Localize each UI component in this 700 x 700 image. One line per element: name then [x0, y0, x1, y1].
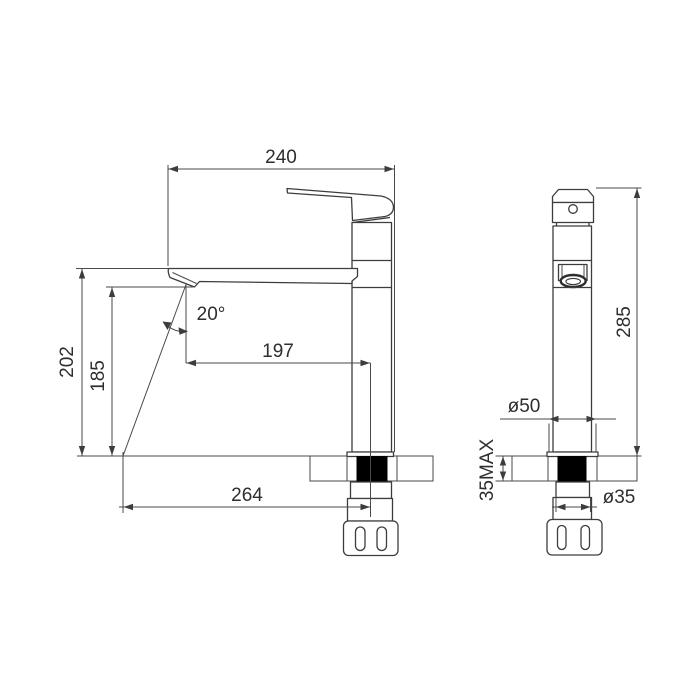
dim-185-group: 185 — [88, 287, 193, 456]
threaded-shank-front — [556, 482, 590, 498]
counter-hatch-left — [310, 456, 347, 481]
spout-arm — [168, 269, 357, 288]
handle-block-front — [553, 203, 594, 223]
technical-drawing-canvas: 240 202 185 20° — [0, 0, 700, 700]
dim-264-group: 264 — [119, 452, 371, 513]
lever-handle — [287, 189, 394, 221]
dim-197-label: 197 — [262, 341, 294, 362]
mounting-shank-front — [558, 457, 586, 482]
handle-cap-front — [553, 190, 594, 203]
dim-197-group: 197 — [186, 341, 371, 366]
faucet-dimension-drawing: 240 202 185 20° — [0, 0, 700, 700]
dim-185-label: 185 — [88, 360, 109, 392]
base-flange-front — [547, 452, 598, 457]
dim-240-label: 240 — [265, 147, 297, 168]
counter-hatch-right-view-right — [597, 456, 637, 481]
dim-240-group: 240 — [168, 147, 394, 172]
dim-35max-group: 35MAX — [477, 439, 512, 502]
counter-hatch-right — [397, 456, 433, 481]
dim-285-group: 285 — [596, 188, 642, 456]
knurl-slot-left — [356, 527, 366, 551]
angle-20-group: 20° — [123, 285, 225, 457]
side-view: 240 202 185 20° — [57, 147, 433, 556]
counter-hatch-right-view-left — [512, 456, 548, 481]
dim-d35-label: ø35 — [603, 487, 636, 508]
front-view: 285 ø50 35MAX ø35 — [477, 188, 642, 555]
dim-264-label: 264 — [231, 485, 263, 506]
dim-202-label: 202 — [57, 346, 78, 378]
knurled-nut-front — [547, 520, 602, 556]
mounting-shank-section — [357, 457, 387, 483]
aerator-inner-ring — [566, 278, 581, 284]
knurl-slot-front-left — [558, 526, 567, 550]
dim-35max-label: 35MAX — [477, 439, 498, 502]
faucet-body-side — [352, 223, 392, 453]
knurl-slot-front-right — [581, 526, 590, 550]
knurl-slot-right — [377, 527, 387, 551]
knurled-nut — [344, 521, 399, 556]
dim-20deg-label: 20° — [197, 304, 226, 325]
stream-angle-line — [123, 285, 186, 457]
dim-d50-label: ø50 — [508, 396, 541, 417]
dim-285-label: 285 — [614, 306, 635, 338]
